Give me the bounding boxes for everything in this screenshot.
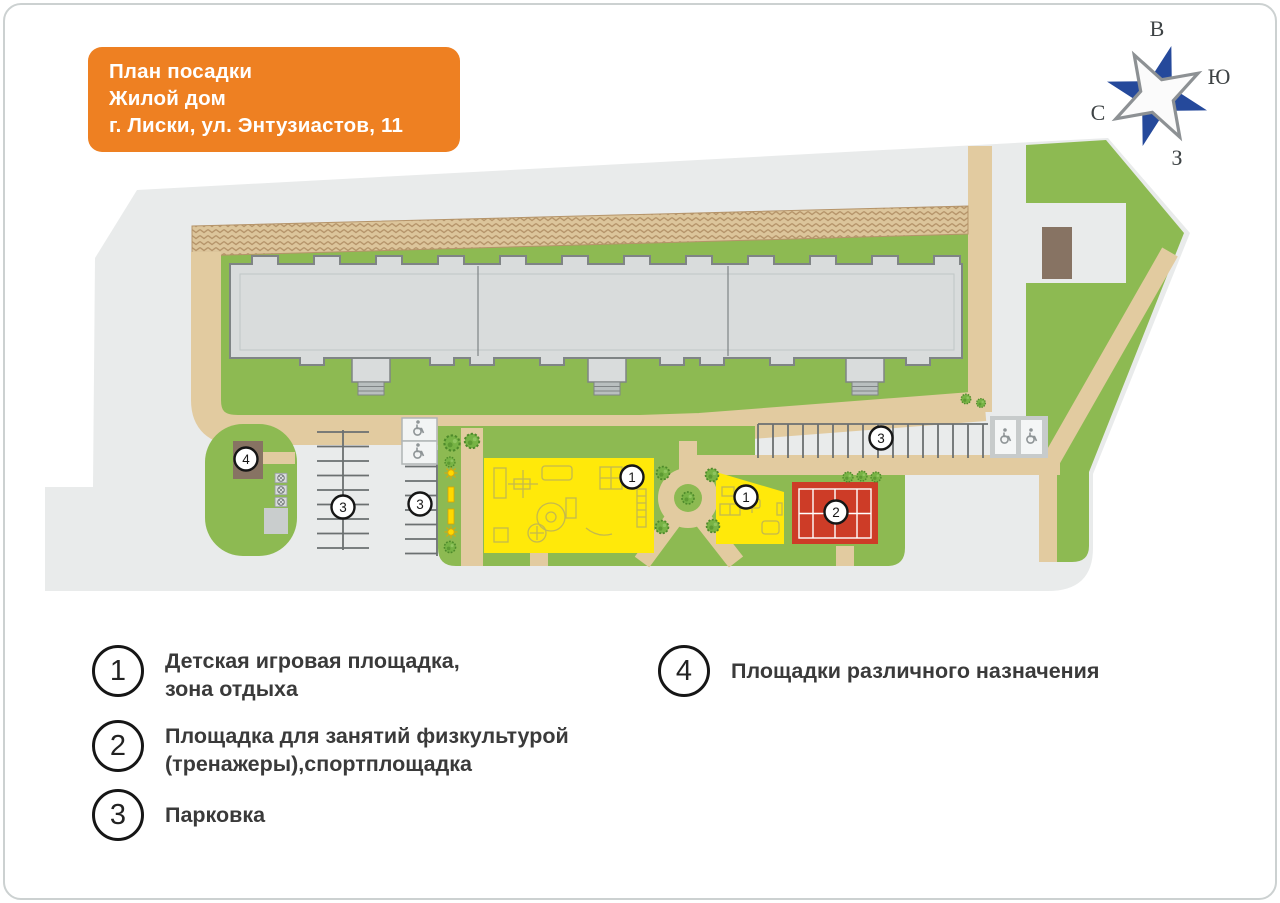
svg-text:3: 3 xyxy=(339,500,347,515)
compass-star-white xyxy=(1093,32,1221,160)
svg-text:3: 3 xyxy=(416,497,424,512)
legend-circle-1: 1 xyxy=(92,645,144,697)
plan-title-box: План посадки Жилой дом г. Лиски, ул. Энт… xyxy=(88,47,460,152)
plan-title-line2: Жилой дом xyxy=(109,85,439,112)
legend-text-1: Детская игровая площадка, зона отдыха xyxy=(165,645,460,703)
badge-parking-left: 3 xyxy=(332,496,355,519)
compass-label-left: С xyxy=(1091,100,1106,125)
compass-label-bottom: З xyxy=(1171,145,1182,169)
plan-title-line3: г. Лиски, ул. Энтузиастов, 11 xyxy=(109,112,439,139)
wedge-notch xyxy=(1026,203,1126,283)
badge-multipurpose: 4 xyxy=(235,448,258,471)
bin-icon xyxy=(275,485,287,494)
building-outline xyxy=(230,256,962,365)
svg-text:2: 2 xyxy=(832,505,840,520)
badge-playground-small: 1 xyxy=(735,486,758,509)
legend-text-2: Площадка для занятий физкультурой (трена… xyxy=(165,720,569,778)
badge-playground-main: 1 xyxy=(621,466,644,489)
compass-rose: В Ю З С xyxy=(1085,14,1235,169)
legend-item-1: 1 Детская игровая площадка, зона отдыха xyxy=(92,645,460,703)
bin-icon xyxy=(275,497,287,506)
legend-circle-3: 3 xyxy=(92,789,144,841)
courtyard-path-vertical xyxy=(461,428,483,566)
badge-parking-middle: 3 xyxy=(409,493,432,516)
multipurpose-area xyxy=(205,424,297,556)
legend-item-3: 3 Парковка xyxy=(92,789,265,841)
handicap-parking-middle xyxy=(402,418,437,464)
utility-structure xyxy=(1042,227,1072,279)
legend-text-1-line1: Детская игровая площадка, xyxy=(165,647,460,675)
compass-label-top: В xyxy=(1150,16,1165,41)
plan-title-line1: План посадки xyxy=(109,58,439,85)
legend-text-2-line1: Площадка для занятий физкультурой xyxy=(165,722,569,750)
site-plan-page: 1 1 2 3 3 3 4 xyxy=(0,0,1280,903)
handicap-parking-right xyxy=(990,416,1048,458)
legend-text-2-line2: (тренажеры),спортплощадка xyxy=(165,750,569,778)
compass-label-right: Ю xyxy=(1208,64,1231,89)
svg-text:4: 4 xyxy=(242,452,250,467)
legend-circle-2: 2 xyxy=(92,720,144,772)
svg-text:3: 3 xyxy=(877,431,885,446)
legend-item-4: 4 Площадки различного назначения xyxy=(658,645,1099,697)
shed xyxy=(264,508,288,534)
svg-text:1: 1 xyxy=(742,490,750,505)
badge-sport-court: 2 xyxy=(825,501,848,524)
path-stub-2 xyxy=(836,546,854,566)
badge-parking-top-right: 3 xyxy=(870,427,893,450)
legend-text-4: Площадки различного назначения xyxy=(731,657,1099,685)
legend-item-2: 2 Площадка для занятий физкультурой (тре… xyxy=(92,720,569,778)
access-road xyxy=(968,146,992,412)
svg-text:1: 1 xyxy=(628,470,636,485)
legend-circle-4: 4 xyxy=(658,645,710,697)
legend-text-1-line2: зона отдыха xyxy=(165,675,460,703)
legend-text-3: Парковка xyxy=(165,801,265,829)
multipurpose-path xyxy=(261,452,295,464)
bin-icon xyxy=(275,473,287,482)
